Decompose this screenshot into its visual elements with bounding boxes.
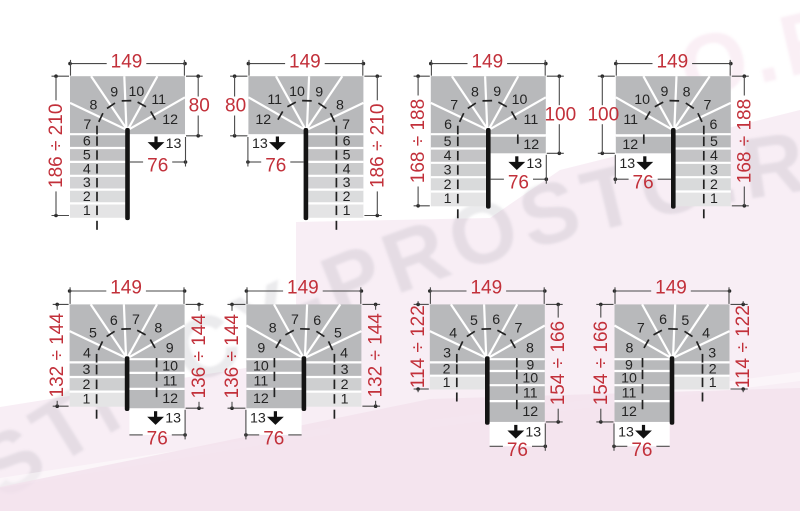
svg-text:1: 1: [343, 203, 351, 219]
svg-text:11: 11: [267, 92, 282, 108]
svg-text:1: 1: [710, 191, 718, 207]
svg-text:154 ÷ 166: 154 ÷ 166: [591, 321, 612, 405]
svg-text:7: 7: [83, 117, 91, 133]
svg-text:8: 8: [336, 97, 344, 113]
svg-text:8: 8: [526, 340, 534, 356]
svg-text:100: 100: [544, 104, 576, 125]
svg-text:4: 4: [340, 345, 348, 361]
svg-text:149: 149: [110, 278, 142, 299]
svg-text:12: 12: [253, 391, 269, 407]
svg-text:1: 1: [82, 391, 90, 407]
svg-text:186 ÷ 210: 186 ÷ 210: [46, 104, 67, 188]
svg-text:11: 11: [622, 386, 637, 402]
svg-text:76: 76: [507, 440, 528, 461]
svg-text:9: 9: [315, 85, 323, 101]
svg-text:114 ÷ 122: 114 ÷ 122: [733, 305, 754, 388]
svg-text:12: 12: [255, 112, 271, 128]
svg-text:1: 1: [341, 391, 349, 407]
svg-text:1: 1: [444, 191, 452, 207]
svg-text:12: 12: [622, 137, 638, 153]
svg-text:149: 149: [471, 52, 503, 73]
svg-text:10: 10: [289, 84, 305, 100]
svg-text:7: 7: [291, 312, 299, 328]
svg-text:10: 10: [621, 371, 637, 387]
svg-text:168 ÷ 188: 168 ÷ 188: [408, 99, 429, 183]
svg-text:149: 149: [287, 278, 319, 299]
svg-text:13: 13: [619, 156, 635, 172]
svg-text:149: 149: [289, 52, 321, 73]
svg-text:3: 3: [82, 362, 90, 378]
svg-text:154 ÷ 166: 154 ÷ 166: [548, 321, 569, 405]
svg-text:1: 1: [443, 375, 451, 391]
svg-text:1: 1: [83, 203, 91, 219]
svg-text:76: 76: [147, 428, 168, 449]
svg-text:10: 10: [162, 359, 178, 375]
svg-text:7: 7: [515, 320, 523, 336]
svg-text:11: 11: [523, 386, 538, 402]
svg-text:149: 149: [470, 278, 502, 299]
svg-text:12: 12: [522, 404, 538, 420]
svg-text:5: 5: [470, 313, 478, 329]
svg-text:7: 7: [637, 320, 645, 336]
svg-text:4: 4: [449, 326, 457, 342]
svg-text:149: 149: [655, 278, 687, 299]
svg-text:136 ÷ 144: 136 ÷ 144: [189, 314, 210, 399]
svg-text:10: 10: [512, 92, 528, 108]
svg-text:6: 6: [710, 117, 718, 133]
svg-text:12: 12: [162, 391, 178, 407]
svg-text:7: 7: [450, 97, 458, 113]
svg-text:149: 149: [656, 52, 688, 73]
svg-text:11: 11: [151, 92, 166, 108]
svg-text:5: 5: [89, 326, 97, 342]
svg-text:100: 100: [587, 104, 619, 125]
svg-text:149: 149: [111, 52, 143, 73]
svg-text:76: 76: [633, 173, 654, 194]
svg-text:76: 76: [508, 173, 529, 194]
svg-text:3: 3: [443, 345, 451, 361]
svg-text:2: 2: [82, 377, 90, 393]
svg-text:7: 7: [132, 312, 140, 328]
svg-text:5: 5: [334, 326, 342, 342]
svg-text:12: 12: [621, 404, 637, 420]
svg-text:6: 6: [444, 117, 452, 133]
svg-text:10: 10: [634, 92, 650, 108]
svg-text:12: 12: [523, 137, 539, 153]
svg-text:76: 76: [631, 440, 652, 461]
svg-text:4: 4: [83, 345, 91, 361]
svg-text:8: 8: [683, 85, 691, 101]
svg-text:8: 8: [269, 320, 277, 336]
svg-text:10: 10: [522, 371, 538, 387]
svg-text:3: 3: [341, 362, 349, 378]
svg-text:13: 13: [250, 411, 266, 427]
svg-text:11: 11: [524, 112, 539, 128]
svg-text:11: 11: [623, 112, 638, 128]
svg-text:13: 13: [252, 136, 268, 152]
svg-text:12: 12: [162, 112, 178, 128]
svg-text:9: 9: [493, 84, 501, 100]
svg-text:132 ÷ 144: 132 ÷ 144: [366, 313, 387, 398]
svg-text:6: 6: [659, 312, 667, 328]
svg-text:10: 10: [253, 359, 269, 375]
svg-text:10: 10: [129, 84, 145, 100]
svg-text:76: 76: [263, 428, 284, 449]
svg-text:9: 9: [110, 85, 118, 101]
svg-text:9: 9: [660, 84, 668, 100]
svg-text:5: 5: [681, 313, 689, 329]
svg-text:11: 11: [254, 373, 269, 389]
svg-text:13: 13: [618, 424, 634, 440]
svg-text:3: 3: [708, 345, 716, 361]
svg-text:9: 9: [257, 340, 265, 356]
svg-text:4: 4: [702, 326, 710, 342]
svg-text:2: 2: [341, 377, 349, 393]
svg-text:13: 13: [166, 136, 182, 152]
svg-text:11: 11: [163, 373, 178, 389]
svg-text:1: 1: [709, 375, 717, 391]
svg-text:9: 9: [166, 340, 174, 356]
svg-text:132 ÷ 144: 132 ÷ 144: [47, 313, 68, 398]
svg-text:8: 8: [471, 85, 479, 101]
svg-text:76: 76: [147, 156, 168, 177]
svg-text:13: 13: [525, 424, 541, 440]
svg-text:114 ÷ 122: 114 ÷ 122: [408, 305, 429, 388]
svg-text:6: 6: [110, 313, 118, 329]
svg-text:8: 8: [89, 97, 97, 113]
svg-text:13: 13: [165, 411, 181, 427]
svg-text:6: 6: [313, 313, 321, 329]
svg-text:76: 76: [265, 156, 286, 177]
svg-text:7: 7: [703, 97, 711, 113]
svg-text:168 ÷ 188: 168 ÷ 188: [734, 99, 755, 183]
svg-text:6: 6: [492, 312, 500, 328]
svg-text:8: 8: [625, 340, 633, 356]
svg-text:80: 80: [189, 96, 210, 117]
svg-text:186 ÷ 210: 186 ÷ 210: [367, 104, 388, 188]
svg-text:8: 8: [154, 320, 162, 336]
svg-text:7: 7: [342, 117, 350, 133]
svg-text:136 ÷ 144: 136 ÷ 144: [222, 314, 243, 399]
svg-text:80: 80: [225, 96, 246, 117]
svg-text:13: 13: [526, 156, 542, 172]
